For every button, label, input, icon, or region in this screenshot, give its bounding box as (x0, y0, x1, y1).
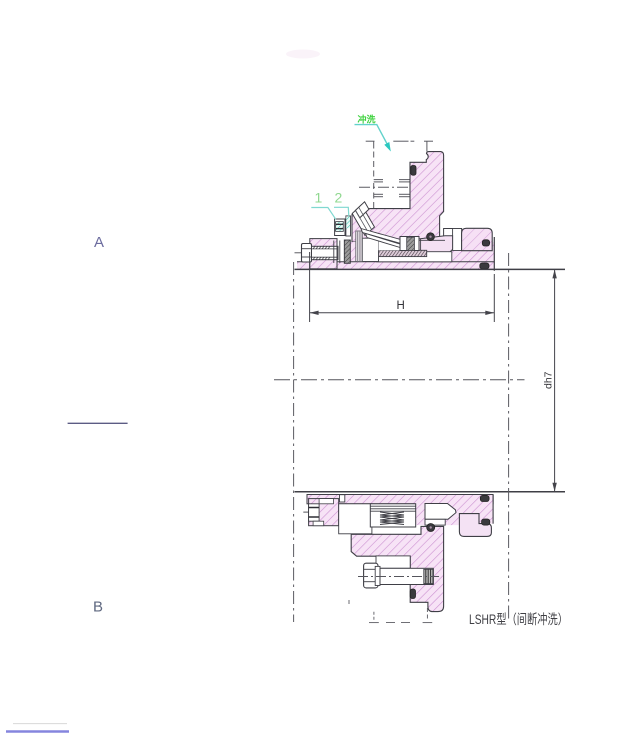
svg-text:LSHR型（间断冲洗）: LSHR型（间断冲洗） (469, 612, 568, 627)
svg-text:B: B (93, 599, 103, 616)
svg-text:2: 2 (335, 190, 343, 206)
svg-text:dh7: dh7 (543, 371, 555, 389)
svg-text:冲洗: 冲洗 (358, 114, 376, 125)
svg-text:1: 1 (315, 190, 323, 206)
svg-text:A: A (94, 234, 104, 251)
svg-text:H: H (397, 300, 405, 312)
